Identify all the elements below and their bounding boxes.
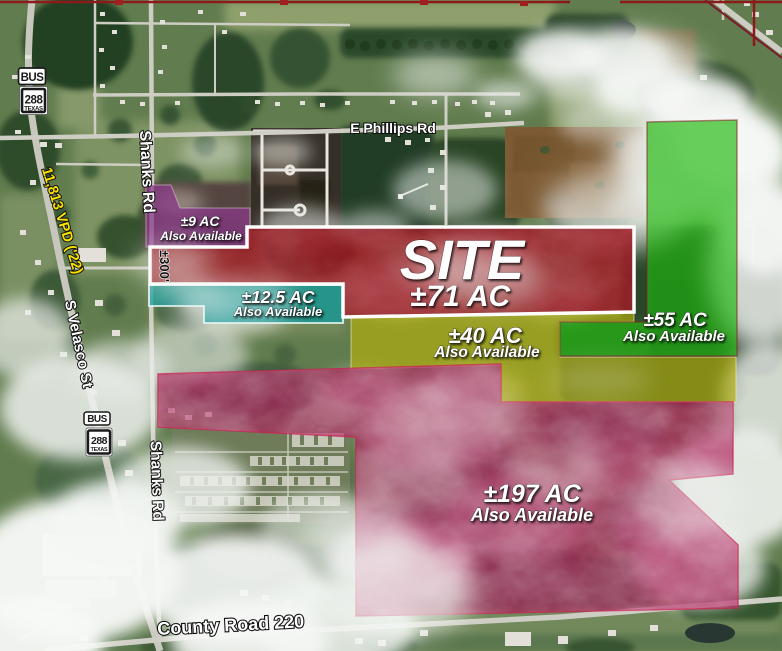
svg-text:±71 AC: ±71 AC bbox=[410, 280, 512, 313]
svg-text:Shanks Rd: Shanks Rd bbox=[147, 441, 167, 522]
svg-text:288: 288 bbox=[91, 435, 108, 447]
svg-text:BUS: BUS bbox=[21, 72, 45, 84]
svg-text:Also Available: Also Available bbox=[622, 328, 725, 345]
svg-text:TEXAS: TEXAS bbox=[24, 107, 43, 113]
svg-text:±197 AC: ±197 AC bbox=[483, 480, 582, 508]
svg-text:E Phillips Rd: E Phillips Rd bbox=[350, 120, 436, 136]
svg-text:BUS: BUS bbox=[87, 414, 107, 425]
svg-text:Also Available: Also Available bbox=[470, 505, 593, 525]
svg-text:±300': ±300' bbox=[157, 250, 172, 282]
svg-text:TEXAS: TEXAS bbox=[91, 447, 108, 453]
svg-text:Also Available: Also Available bbox=[233, 304, 322, 319]
svg-text:Also Available: Also Available bbox=[433, 344, 540, 361]
svg-text:288: 288 bbox=[25, 95, 44, 107]
svg-text:Also Available: Also Available bbox=[159, 229, 242, 243]
svg-text:±9 AC: ±9 AC bbox=[180, 213, 220, 229]
